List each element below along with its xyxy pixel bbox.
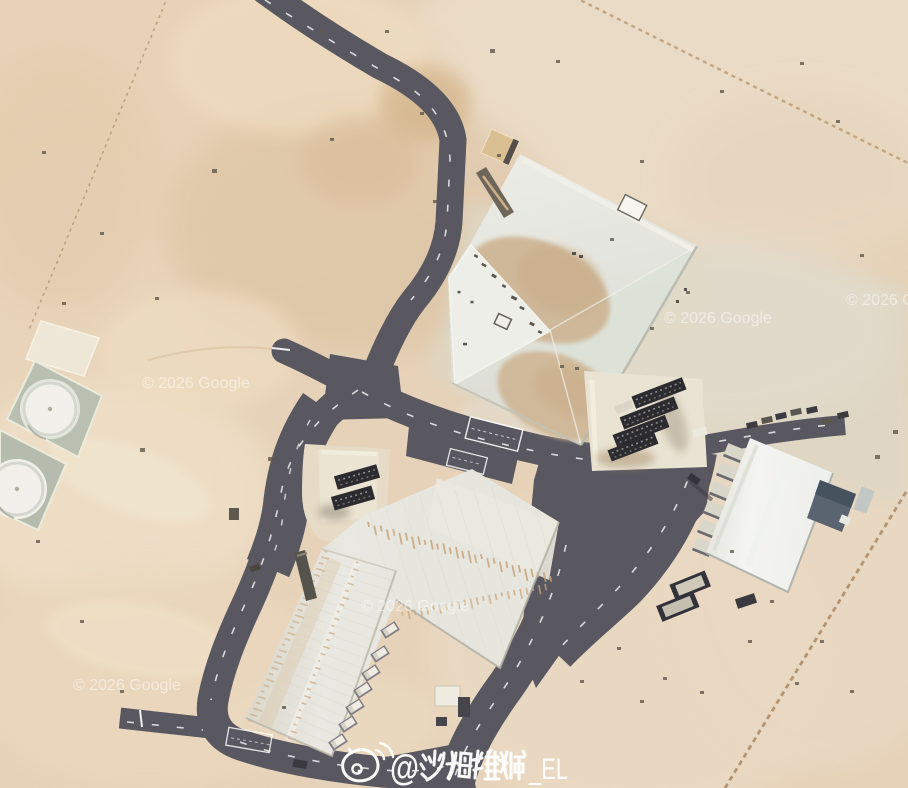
svg-text:_EL: _EL (528, 753, 568, 786)
svg-text:© 2026 Google: © 2026 Google (142, 375, 250, 392)
svg-text:© 2026 Google: © 2026 Google (664, 310, 772, 327)
svg-text:@: @ (390, 747, 419, 788)
svg-text:© 2026 Google: © 2026 Google (846, 292, 908, 309)
svg-text:© 2026 Google: © 2026 Google (361, 598, 469, 615)
svg-text:© 2026 Google: © 2026 Google (73, 677, 181, 694)
